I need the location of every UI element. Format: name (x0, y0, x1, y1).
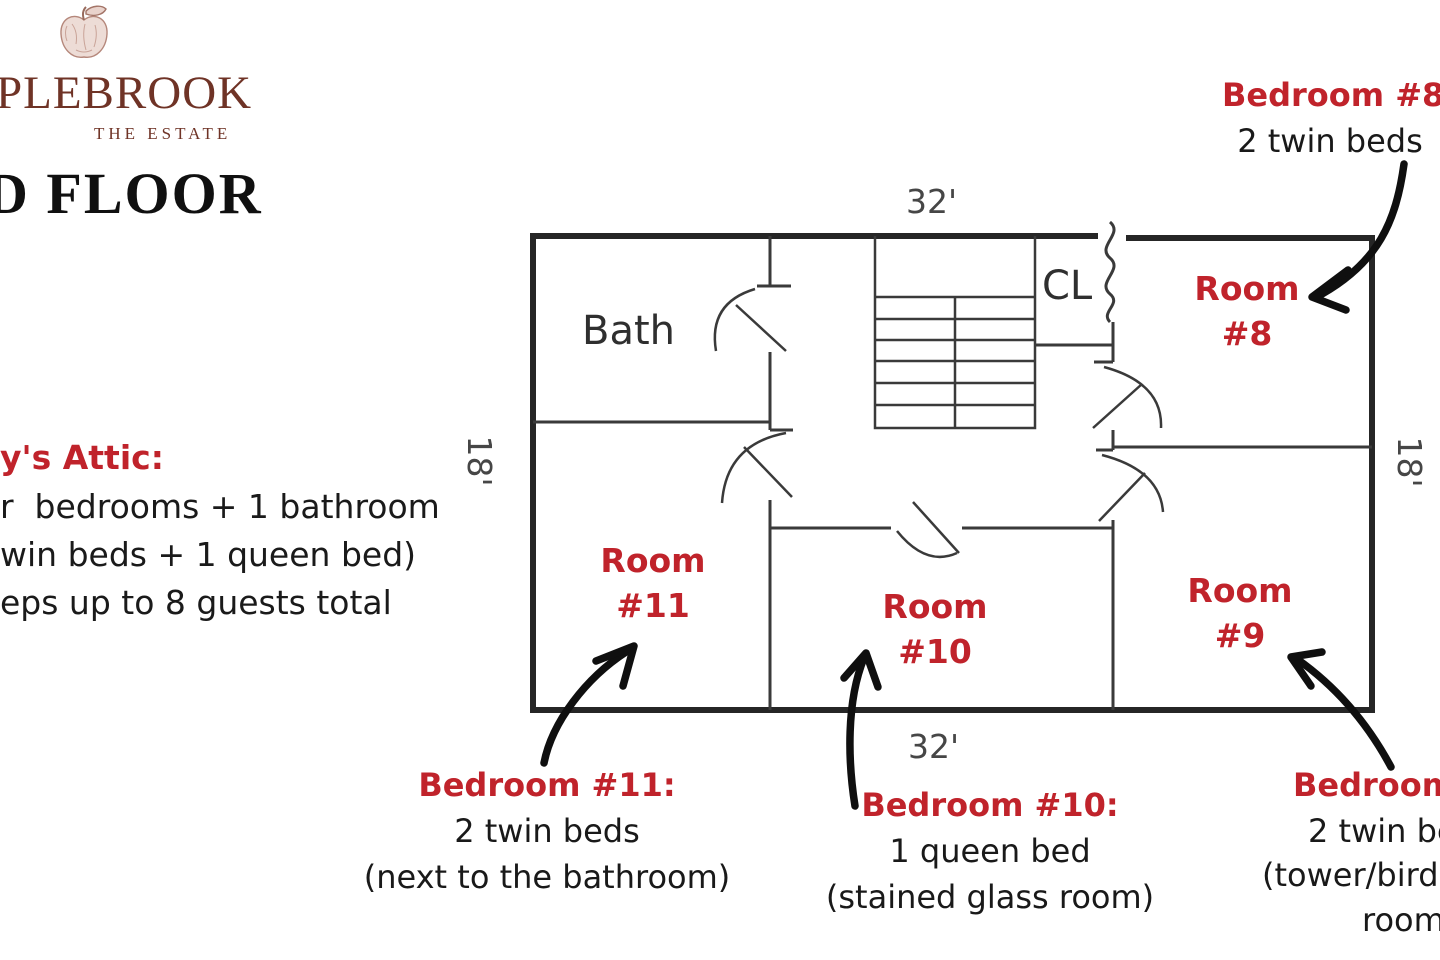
dimension-left: 18' (462, 434, 498, 488)
bath-room-label: Bath (582, 308, 675, 354)
room8-door-arc (1104, 367, 1161, 428)
bath-door-arc (715, 289, 755, 351)
bedroom9-note-line: 2 twin be (1308, 812, 1440, 850)
room10-door-arc (897, 531, 957, 557)
stairs (875, 236, 1035, 428)
dimension-top: 32' (906, 182, 957, 221)
estate-floorplan-poster: { "colors": { "accent_red": "#c0232b", "… (0, 0, 1440, 960)
room11-door-arc (722, 433, 786, 503)
room8-label: Room#8 (1162, 266, 1332, 356)
room11-label: Room#11 (568, 538, 738, 628)
bedroom9-note-line: room (1362, 901, 1440, 939)
room9-label: Room#9 (1155, 568, 1325, 658)
bedroom11-note: Bedroom #11: 2 twin beds (next to the ba… (322, 762, 772, 900)
closet-label: CL (1042, 263, 1092, 309)
bedroom8-note: Bedroom #8: 2 twin beds (1222, 72, 1438, 164)
bedroom9-note-heading: Bedroom (1293, 766, 1440, 804)
dimension-bottom: 32' (908, 727, 959, 766)
wall-break-squiggle (1106, 222, 1114, 322)
bedroom9-note-line: (tower/bird (1262, 856, 1439, 894)
room10-label: Room#10 (850, 584, 1020, 674)
bedroom10-note: Bedroom #10: 1 queen bed (stained glass … (780, 782, 1200, 920)
dimension-right: 18' (1392, 435, 1428, 489)
arrow-to-room11 (544, 646, 634, 763)
room9-door-arc (1102, 455, 1163, 512)
